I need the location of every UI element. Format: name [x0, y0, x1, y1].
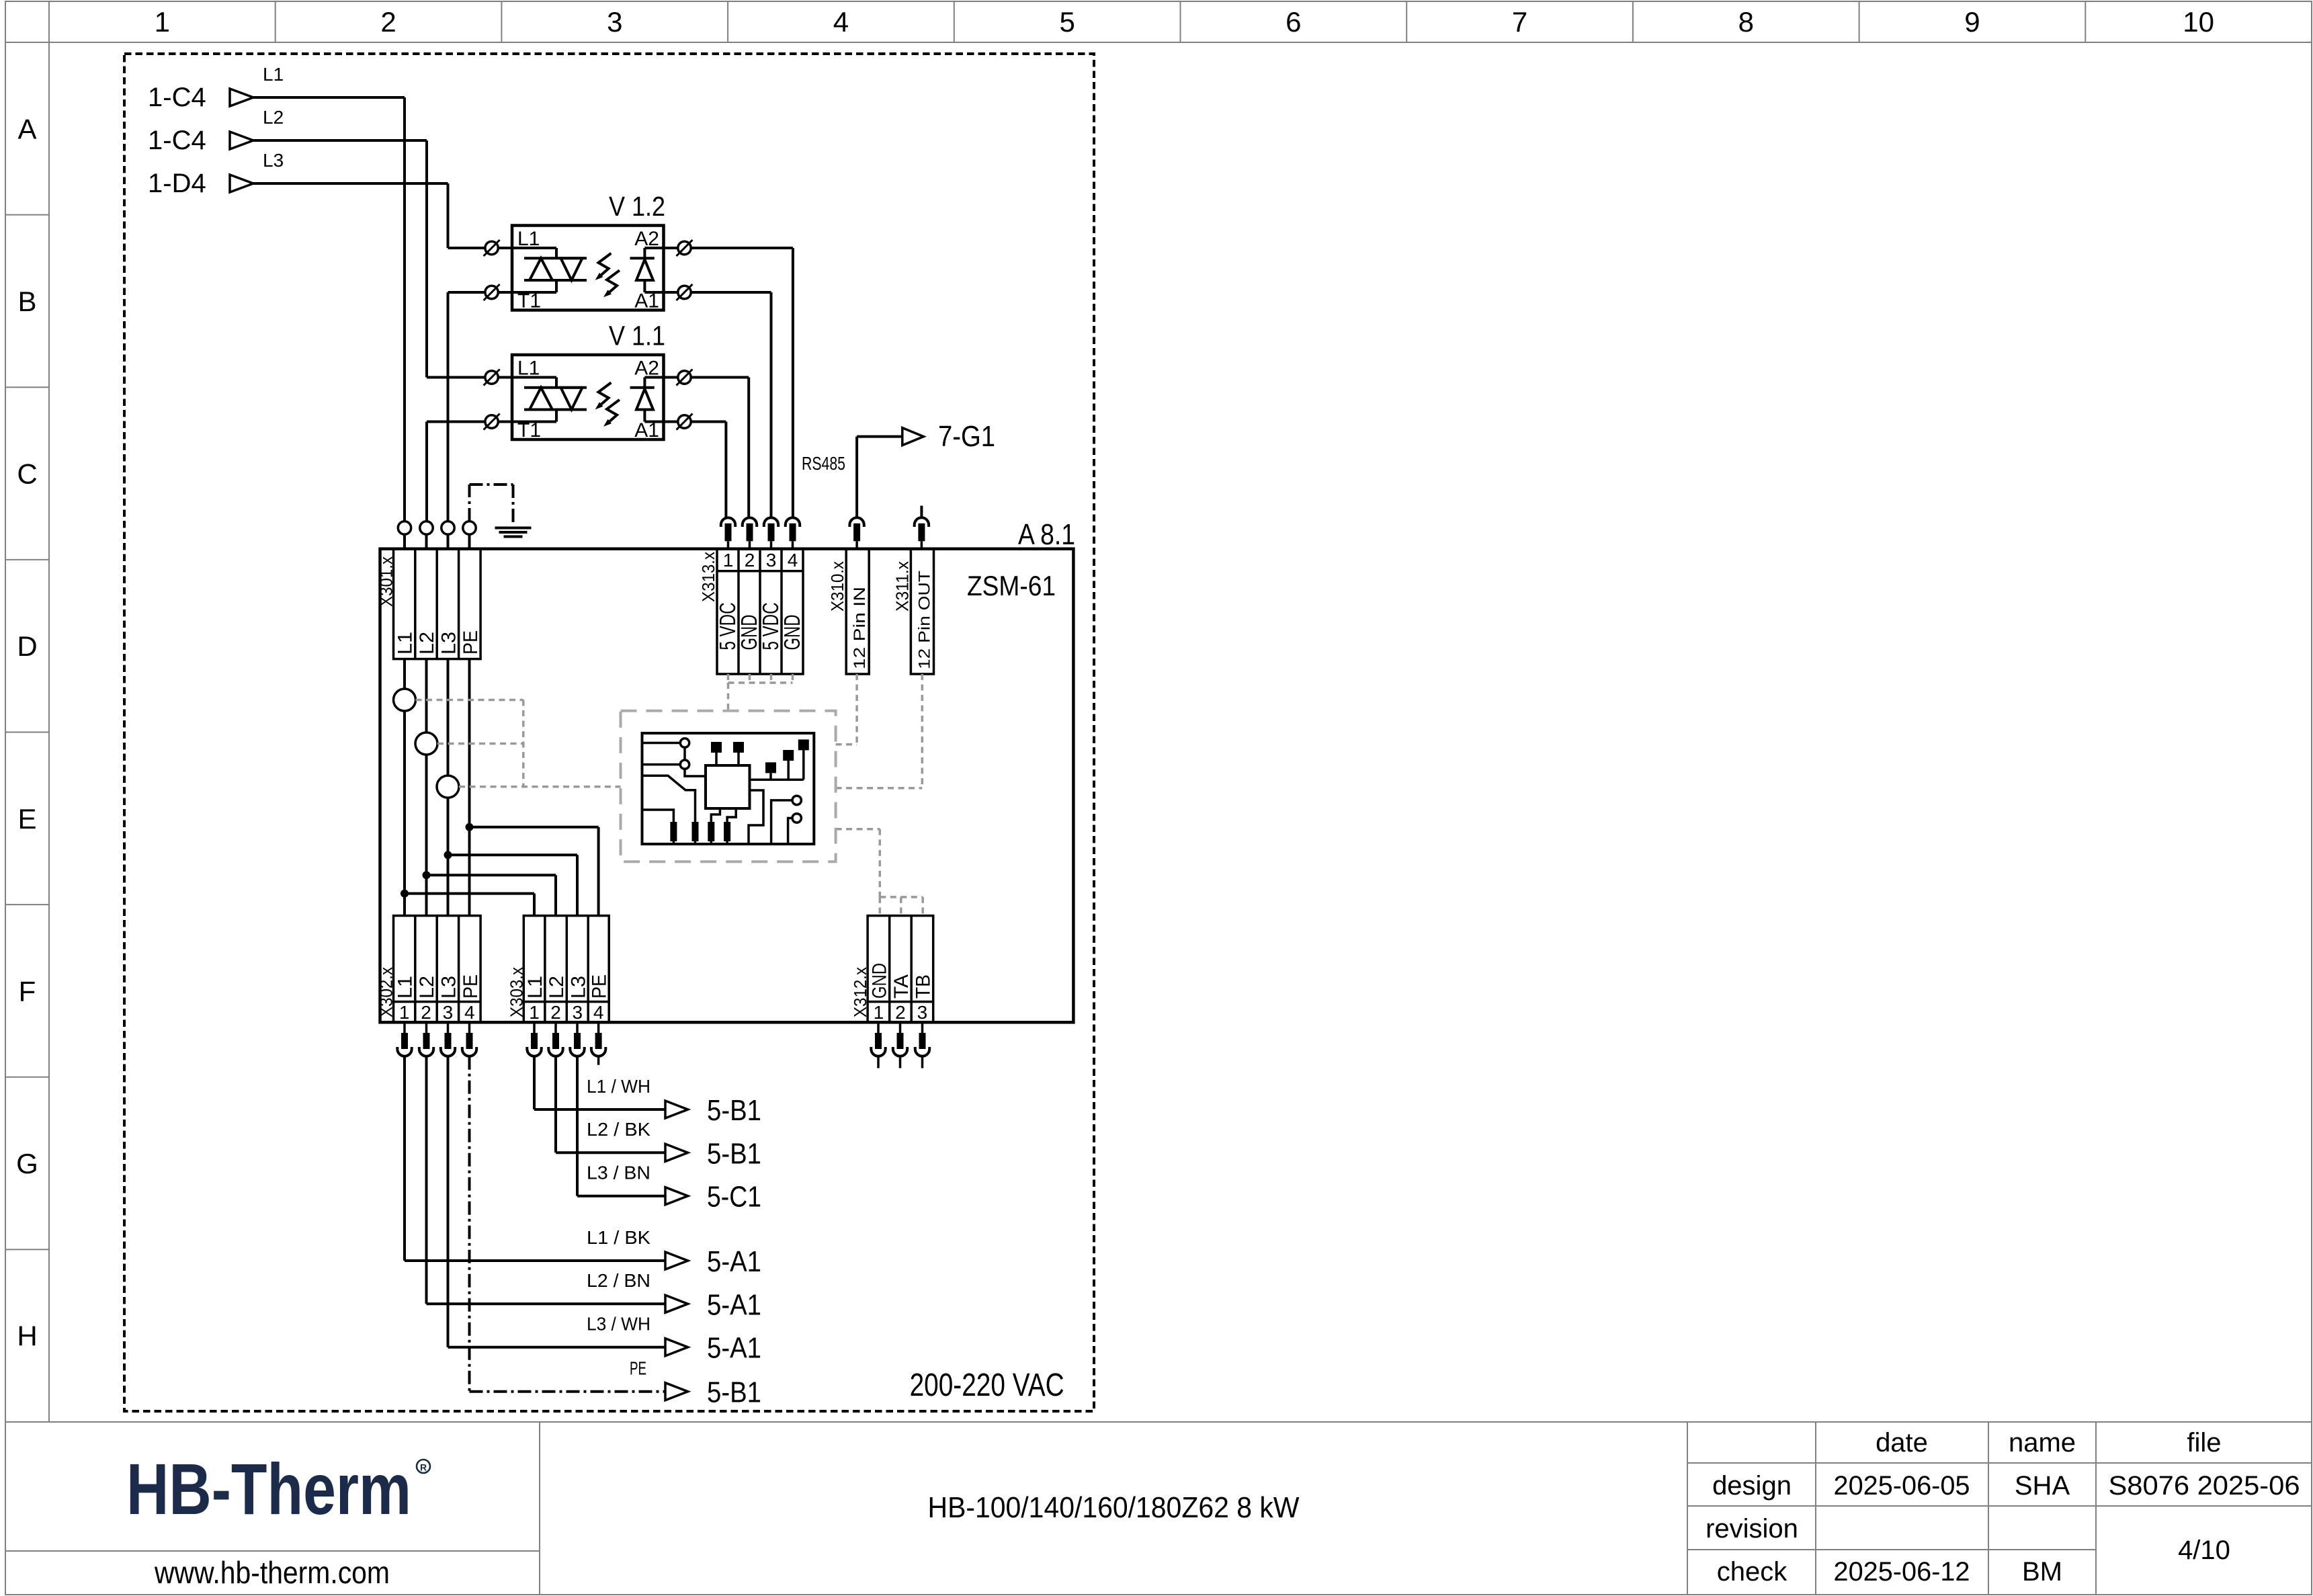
- svg-text:RS485: RS485: [802, 453, 845, 474]
- svg-text:L1 / BK: L1 / BK: [587, 1227, 650, 1248]
- svg-text:3: 3: [607, 6, 622, 38]
- svg-text:5-B1: 5-B1: [707, 1137, 761, 1170]
- svg-text:5-A1: 5-A1: [707, 1332, 761, 1365]
- svg-text:5-B1: 5-B1: [707, 1376, 761, 1409]
- svg-text:S8076 2025-06: S8076 2025-06: [2109, 1471, 2300, 1501]
- svg-text:G: G: [16, 1148, 38, 1179]
- svg-text:5-B1: 5-B1: [707, 1094, 761, 1127]
- svg-text:A: A: [17, 113, 36, 144]
- svg-text:GND: GND: [780, 615, 804, 650]
- svg-text:L2: L2: [416, 632, 438, 655]
- svg-text:L1: L1: [263, 64, 284, 85]
- svg-text:1: 1: [399, 1002, 410, 1023]
- svg-text:file: file: [2187, 1428, 2221, 1458]
- svg-text:TB: TB: [912, 974, 934, 999]
- svg-text:1: 1: [155, 6, 170, 38]
- svg-text:5-C1: 5-C1: [707, 1181, 761, 1214]
- svg-text:4/10: 4/10: [2178, 1536, 2230, 1565]
- svg-text:V 1.2: V 1.2: [609, 191, 665, 222]
- svg-text:2025-06-12: 2025-06-12: [1834, 1557, 1970, 1587]
- svg-text:4: 4: [788, 550, 798, 571]
- svg-text:F: F: [19, 975, 36, 1007]
- svg-text:12 Pin OUT: 12 Pin OUT: [915, 571, 933, 669]
- svg-text:HB-Therm: HB-Therm: [126, 1448, 411, 1529]
- svg-text:1-C4: 1-C4: [148, 83, 206, 112]
- svg-text:3: 3: [572, 1002, 583, 1023]
- svg-text:3: 3: [917, 1002, 928, 1023]
- svg-text:L1: L1: [394, 632, 417, 655]
- svg-text:12 Pin IN: 12 Pin IN: [851, 587, 869, 669]
- svg-text:GND: GND: [868, 963, 890, 999]
- svg-text:9: 9: [1964, 6, 1980, 38]
- svg-text:PE: PE: [460, 974, 482, 999]
- svg-text:L3 / BN: L3 / BN: [587, 1162, 650, 1183]
- svg-text:L3: L3: [567, 976, 589, 999]
- svg-text:L1: L1: [394, 976, 417, 999]
- svg-text:1: 1: [723, 550, 734, 571]
- svg-text:L3: L3: [437, 632, 460, 655]
- svg-text:A 8.1: A 8.1: [1018, 518, 1075, 551]
- svg-text:2: 2: [895, 1002, 906, 1023]
- svg-text:L2: L2: [546, 976, 568, 999]
- svg-text:L3: L3: [437, 976, 460, 999]
- svg-text:BM: BM: [2022, 1557, 2062, 1587]
- svg-text:6: 6: [1286, 6, 1301, 38]
- svg-text:X312.x: X312.x: [850, 967, 870, 1017]
- svg-text:7: 7: [1512, 6, 1527, 38]
- svg-text:5-A1: 5-A1: [707, 1288, 761, 1321]
- svg-text:7-G1: 7-G1: [938, 420, 995, 453]
- svg-text:L1 / WH: L1 / WH: [587, 1076, 650, 1097]
- svg-text:X311.x: X311.x: [892, 561, 912, 612]
- svg-text:L3: L3: [263, 150, 284, 171]
- svg-text:4: 4: [833, 6, 849, 38]
- svg-text:X301.x: X301.x: [376, 556, 396, 607]
- svg-text:1: 1: [874, 1002, 884, 1023]
- svg-text:www.hb-therm.com: www.hb-therm.com: [154, 1555, 390, 1590]
- svg-text:X313.x: X313.x: [698, 552, 718, 602]
- svg-text:name: name: [2009, 1428, 2076, 1458]
- svg-text:ZSM-61: ZSM-61: [967, 570, 1056, 601]
- svg-text:4: 4: [593, 1002, 604, 1023]
- svg-text:L2: L2: [416, 976, 438, 999]
- svg-text:E: E: [17, 803, 36, 835]
- svg-text:L2 / BN: L2 / BN: [587, 1270, 650, 1291]
- svg-text:5-A1: 5-A1: [707, 1245, 761, 1278]
- svg-text:PE: PE: [460, 630, 482, 655]
- svg-text:B: B: [17, 286, 36, 317]
- svg-text:200-220 VAC: 200-220 VAC: [910, 1368, 1064, 1403]
- svg-text:2: 2: [550, 1002, 561, 1023]
- svg-text:5: 5: [1059, 6, 1075, 38]
- svg-text:3: 3: [443, 1002, 454, 1023]
- svg-text:2: 2: [421, 1002, 431, 1023]
- svg-text:10: 10: [2183, 6, 2214, 38]
- svg-text:2: 2: [745, 550, 755, 571]
- svg-text:PE: PE: [630, 1357, 646, 1378]
- svg-text:revision: revision: [1706, 1514, 1798, 1544]
- svg-text:H: H: [17, 1320, 37, 1352]
- svg-text:TA: TA: [890, 974, 913, 999]
- svg-text:date: date: [1876, 1428, 1928, 1458]
- svg-text:X303.x: X303.x: [506, 967, 526, 1017]
- svg-text:2025-06-05: 2025-06-05: [1834, 1471, 1970, 1501]
- svg-text:X302.x: X302.x: [376, 967, 396, 1017]
- svg-text:X310.x: X310.x: [827, 561, 847, 612]
- svg-text:L1: L1: [524, 976, 546, 999]
- svg-text:V 1.1: V 1.1: [609, 321, 665, 351]
- svg-text:check: check: [1717, 1557, 1788, 1587]
- svg-text:4: 4: [464, 1002, 475, 1023]
- svg-text:L2: L2: [263, 107, 284, 128]
- svg-text:2: 2: [380, 6, 396, 38]
- svg-text:D: D: [17, 630, 37, 662]
- svg-text:1: 1: [529, 1002, 540, 1023]
- svg-text:design: design: [1712, 1471, 1792, 1501]
- svg-text:R: R: [420, 1462, 427, 1473]
- svg-text:3: 3: [766, 550, 777, 571]
- svg-text:HB-100/140/160/180Z62 8 kW: HB-100/140/160/180Z62 8 kW: [928, 1491, 1300, 1524]
- svg-text:L2 / BK: L2 / BK: [587, 1119, 650, 1140]
- svg-text:8: 8: [1738, 6, 1754, 38]
- svg-text:SHA: SHA: [2015, 1471, 2070, 1501]
- svg-text:1-C4: 1-C4: [148, 126, 206, 155]
- svg-text:PE: PE: [589, 974, 611, 999]
- svg-text:1-D4: 1-D4: [148, 169, 206, 198]
- svg-text:C: C: [17, 458, 37, 490]
- svg-text:L3 / WH: L3 / WH: [587, 1313, 650, 1334]
